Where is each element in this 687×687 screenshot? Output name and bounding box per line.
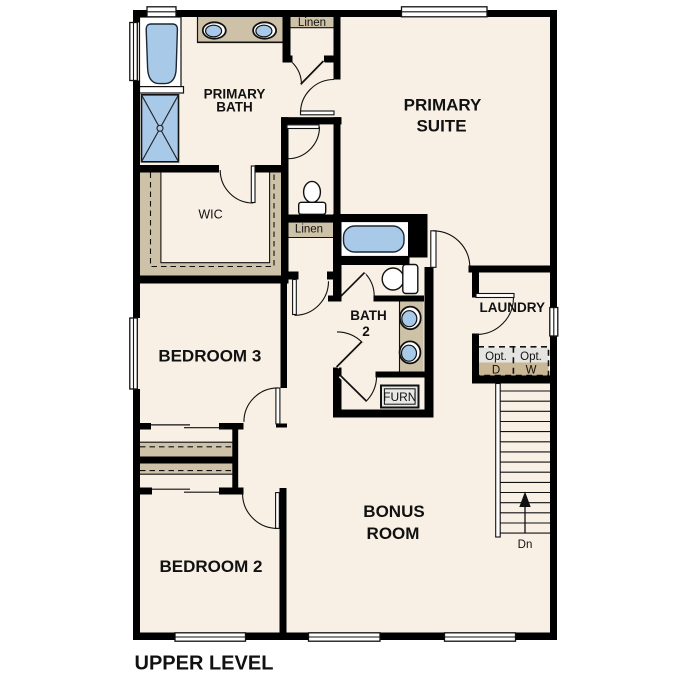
svg-text:Linen: Linen (298, 17, 326, 29)
svg-text:Dn: Dn (518, 539, 533, 551)
svg-text:W: W (526, 365, 537, 377)
svg-text:SUITE: SUITE (416, 117, 466, 136)
svg-text:BONUS: BONUS (363, 502, 424, 521)
svg-text:UPPER LEVEL: UPPER LEVEL (135, 653, 274, 675)
svg-text:2: 2 (362, 324, 370, 339)
svg-text:Opt.: Opt. (520, 351, 542, 363)
svg-text:LAUNDRY: LAUNDRY (480, 300, 546, 315)
svg-text:BEDROOM 3: BEDROOM 3 (158, 347, 261, 366)
svg-text:PRIMARY: PRIMARY (404, 96, 482, 115)
svg-text:WIC: WIC (198, 208, 222, 222)
svg-text:BATH: BATH (350, 308, 387, 323)
svg-text:D: D (492, 365, 500, 377)
svg-text:Linen: Linen (295, 224, 323, 236)
svg-text:BATH: BATH (216, 100, 253, 115)
svg-text:BEDROOM 2: BEDROOM 2 (160, 557, 263, 576)
svg-text:FURN: FURN (383, 390, 416, 404)
svg-text:Opt.: Opt. (485, 351, 507, 363)
svg-text:ROOM: ROOM (367, 524, 420, 543)
